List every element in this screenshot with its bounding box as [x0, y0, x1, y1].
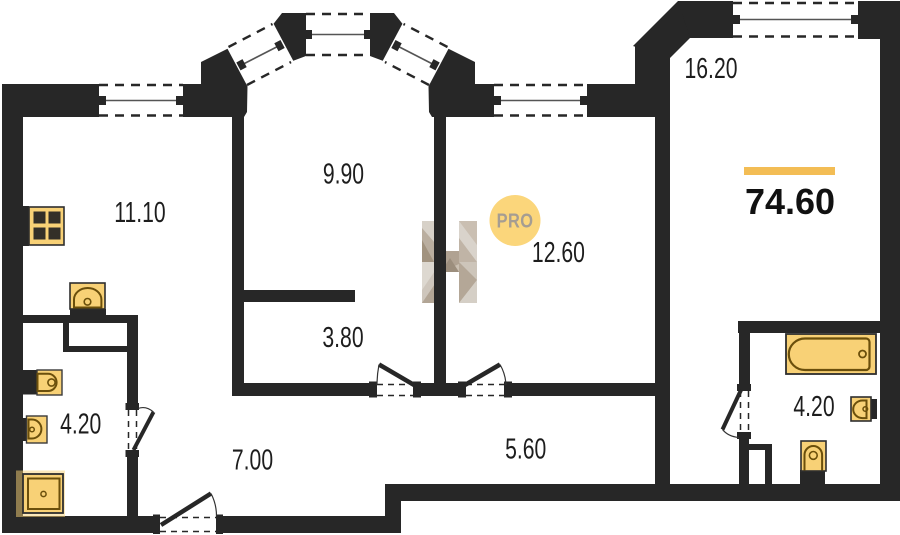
- svg-text:12.60: 12.60: [532, 237, 585, 269]
- svg-text:4.20: 4.20: [60, 408, 101, 440]
- svg-text:7.00: 7.00: [232, 444, 273, 476]
- svg-text:74.60: 74.60: [745, 181, 835, 222]
- svg-text:5.60: 5.60: [505, 433, 546, 465]
- svg-text:11.10: 11.10: [114, 197, 165, 229]
- svg-text:3.80: 3.80: [322, 322, 363, 354]
- svg-text:9.90: 9.90: [323, 158, 364, 190]
- svg-text:4.20: 4.20: [793, 391, 834, 423]
- svg-text:16.20: 16.20: [685, 53, 738, 85]
- svg-text:PRO: PRO: [497, 209, 534, 232]
